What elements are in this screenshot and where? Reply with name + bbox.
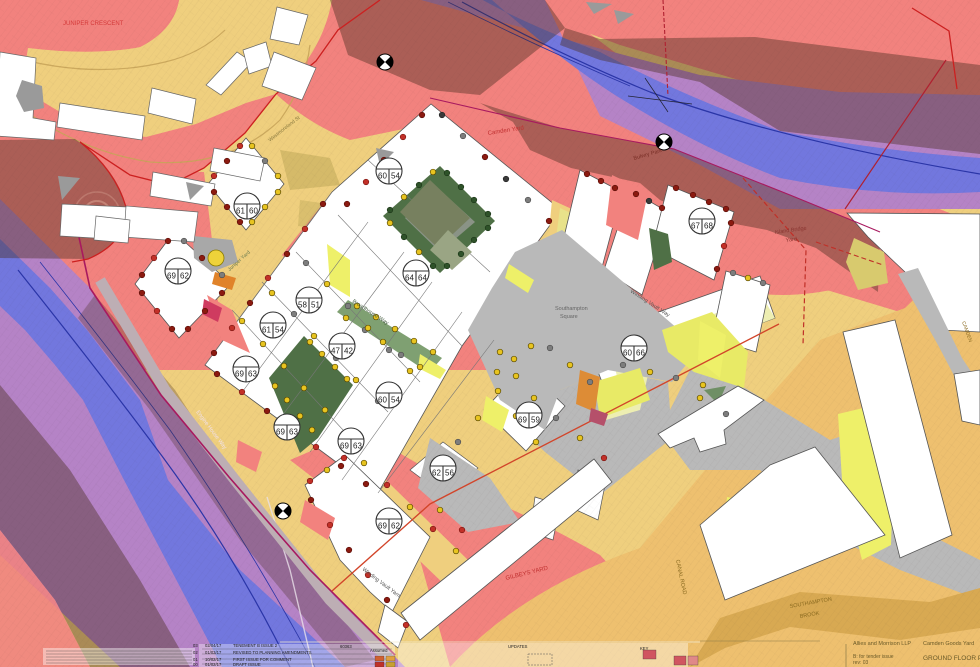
svg-text:69: 69 bbox=[167, 272, 176, 281]
svg-text:54: 54 bbox=[391, 396, 400, 405]
svg-text:69: 69 bbox=[235, 370, 244, 379]
svg-text:69: 69 bbox=[378, 522, 387, 531]
svg-text:62: 62 bbox=[391, 522, 400, 531]
svg-text:Allies and Morrison LLP: Allies and Morrison LLP bbox=[853, 641, 911, 647]
svg-text:54: 54 bbox=[391, 172, 400, 181]
svg-text:01/02/17: 01/02/17 bbox=[205, 662, 222, 667]
svg-text:51: 51 bbox=[311, 301, 320, 310]
svg-text:00: 00 bbox=[193, 662, 198, 667]
svg-text:JUNIPER CRESCENT: JUNIPER CRESCENT bbox=[63, 21, 124, 27]
svg-text:66: 66 bbox=[636, 349, 645, 358]
svg-text:59: 59 bbox=[531, 416, 540, 425]
svg-text:47: 47 bbox=[331, 347, 340, 356]
svg-text:68: 68 bbox=[704, 222, 713, 231]
svg-text:58: 58 bbox=[298, 301, 307, 310]
svg-text:42: 42 bbox=[344, 347, 353, 356]
svg-text:60: 60 bbox=[249, 207, 258, 216]
svg-text:GROUND FLOOR PL: GROUND FLOOR PL bbox=[923, 655, 980, 662]
svg-text:69: 69 bbox=[518, 416, 527, 425]
svg-text:56: 56 bbox=[445, 469, 454, 478]
svg-text:63: 63 bbox=[353, 442, 362, 451]
svg-text:69: 69 bbox=[340, 442, 349, 451]
svg-text:02/04/17: 02/04/17 bbox=[205, 643, 222, 648]
svg-text:60363: 60363 bbox=[340, 644, 352, 649]
svg-text:69: 69 bbox=[276, 428, 285, 437]
svg-text:03: 03 bbox=[193, 643, 198, 648]
svg-text:62: 62 bbox=[432, 469, 441, 478]
svg-text:Southampton: Southampton bbox=[555, 306, 588, 312]
svg-text:60: 60 bbox=[623, 349, 632, 358]
svg-text:60: 60 bbox=[378, 172, 387, 181]
svg-text:rev: 03: rev: 03 bbox=[853, 660, 869, 666]
svg-text:60: 60 bbox=[378, 396, 387, 405]
svg-text:Camden Goods Yard: Camden Goods Yard bbox=[923, 641, 974, 647]
svg-text:01/03/17: 01/03/17 bbox=[205, 650, 222, 655]
svg-text:63: 63 bbox=[248, 370, 257, 379]
svg-text:REVISED TO PLANNING AMENDMENTS: REVISED TO PLANNING AMENDMENTS bbox=[233, 650, 312, 655]
svg-text:54: 54 bbox=[275, 326, 284, 335]
svg-text:DRAFT ISSUE: DRAFT ISSUE bbox=[233, 662, 261, 667]
svg-text:67: 67 bbox=[691, 222, 700, 231]
svg-text:02: 02 bbox=[193, 650, 198, 655]
svg-text:64: 64 bbox=[405, 274, 414, 283]
svg-text:63: 63 bbox=[289, 428, 298, 437]
svg-text:61: 61 bbox=[236, 207, 245, 216]
svg-text:64: 64 bbox=[418, 274, 427, 283]
svg-text:61: 61 bbox=[262, 326, 271, 335]
svg-text:62: 62 bbox=[180, 272, 189, 281]
svg-text:Square: Square bbox=[560, 314, 578, 320]
svg-text:TENEMENT B ISSUE 2: TENEMENT B ISSUE 2 bbox=[233, 643, 278, 648]
svg-text:Assumed: Assumed bbox=[370, 648, 388, 653]
svg-text:UPDATES: UPDATES bbox=[508, 644, 528, 649]
